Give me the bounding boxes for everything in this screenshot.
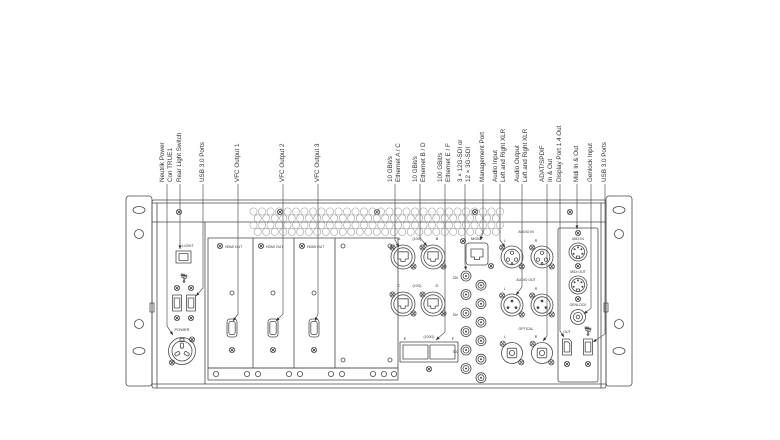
usb-port: [173, 295, 182, 311]
callout-arrow: [516, 291, 519, 295]
callout-leader: [500, 184, 505, 247]
usb-port: [187, 295, 196, 311]
vent-hole: [356, 215, 363, 222]
vent-hole: [420, 222, 427, 229]
vent-hole: [292, 208, 299, 215]
displayport-connector: [563, 339, 572, 355]
vent-hole: [297, 228, 304, 235]
vent-hole: [373, 215, 380, 222]
vent-hole: [254, 228, 261, 235]
hdmi-connector: [227, 319, 237, 337]
sdi-bnc-connector: [461, 290, 471, 300]
vent-hole: [399, 228, 406, 235]
vent-hole: [407, 228, 414, 235]
rack-ear-right: [606, 196, 632, 386]
hdmi-connector: [268, 319, 278, 337]
panel-drawing: LIGHT POWER HDMI OUT HDMI OUT: [0, 0, 780, 440]
callout-arrow: [233, 317, 236, 321]
vent-hole: [394, 208, 401, 215]
vent-hole: [365, 228, 372, 235]
callout-leader: [584, 184, 591, 314]
vent-hole: [309, 208, 316, 215]
sdi-bnc-connector: [461, 308, 471, 318]
sdi-bnc-connector: [476, 299, 486, 309]
vent-hole: [284, 208, 291, 215]
vent-hole: [454, 208, 461, 215]
ethercon-d: [420, 292, 446, 316]
audio-section: [500, 245, 555, 365]
vent-hole: [424, 215, 431, 222]
hdmi-out-label: HDMI OUT: [266, 245, 284, 249]
vent-hole: [250, 222, 257, 229]
callout-label: Audio InputLeft and Right XLR: [492, 129, 508, 182]
eth-b-label: B: [436, 236, 439, 241]
vent-hole: [369, 208, 376, 215]
audio-out-left-xlr: [500, 293, 525, 317]
vent-hole: [382, 228, 389, 235]
eth-c-label: C: [398, 283, 401, 288]
callout-leader: [233, 184, 238, 321]
strip-hole: [381, 371, 386, 376]
powercon-connector: [169, 337, 196, 365]
eth-a-label: A: [398, 236, 401, 241]
vent-hole: [475, 228, 482, 235]
optical-left: [500, 341, 524, 365]
r-label: R: [535, 335, 538, 339]
vent-hole: [254, 215, 261, 222]
l-label: L: [504, 335, 506, 339]
sdi-bnc-connector: [461, 364, 471, 374]
vent-hole: [322, 228, 329, 235]
vent-hole: [365, 215, 372, 222]
callout-arrow: [170, 331, 173, 335]
vent-hole: [475, 215, 482, 222]
vent-hole: [467, 228, 474, 235]
strip-hole: [213, 371, 218, 376]
vent-hole: [352, 208, 359, 215]
vent-hole: [416, 228, 423, 235]
eth-f-label: F: [452, 336, 455, 341]
vfc-card-3: [299, 243, 319, 352]
vent-hole: [386, 208, 393, 215]
hdmi-out-label: HDMI OUT: [307, 245, 325, 249]
vent-hole: [462, 222, 469, 229]
vent-hole: [420, 208, 427, 215]
sdi-bnc-connector: [476, 373, 486, 383]
vent-hole: [258, 222, 265, 229]
vent-hole: [484, 215, 491, 222]
midi-in-label: MIDI IN: [572, 237, 584, 241]
audio-out-right-xlr: [530, 293, 555, 317]
vent-hole: [301, 222, 308, 229]
vent-hole: [492, 215, 499, 222]
callout-leader: [167, 184, 173, 335]
sdi-bnc-connector: [476, 336, 486, 346]
optical-label: OPTICAL: [519, 327, 534, 331]
callout-label: Audio OutputLeft and Right XLR: [514, 129, 530, 182]
sdi-bnc-connector: [461, 327, 471, 337]
vent-hole: [309, 222, 316, 229]
vent-hole: [331, 228, 338, 235]
mgmt-port: [466, 243, 488, 265]
callout-label: Neutrik PowerCon TRUE1: [159, 142, 175, 182]
callout-label: ADAT/SPDIFIn & Out: [539, 145, 555, 182]
vent-hole: [271, 215, 278, 222]
callout-label: VFC Output 1: [234, 144, 242, 183]
vent-hole: [377, 208, 384, 215]
callout-arrow: [179, 245, 182, 249]
callout-leader: [560, 184, 564, 337]
vent-hole: [437, 208, 444, 215]
vent-hole: [305, 215, 312, 222]
vent-hole: [258, 208, 265, 215]
sdi-bnc-connector: [476, 280, 486, 290]
ethercon-c: [390, 292, 416, 316]
callout-label: 10 GBit/sEthernet A / C: [387, 143, 403, 182]
rear-light-switch: [176, 251, 191, 263]
vent-hole: [411, 222, 418, 229]
eth-100g-label: (100G): [424, 335, 435, 339]
vent-hole: [377, 222, 384, 229]
sdi-bnc-connector: [461, 271, 471, 281]
vent-hole: [339, 215, 346, 222]
callout-arrow: [593, 339, 597, 342]
callout-label: VFC Output 3: [314, 144, 322, 183]
vent-hole: [458, 215, 465, 222]
rack-chassis: [126, 196, 632, 388]
vent-hole: [416, 215, 423, 222]
vent-hole: [399, 215, 406, 222]
strip-hole: [370, 371, 375, 376]
vent-hole: [352, 222, 359, 229]
vent-hole: [450, 228, 457, 235]
vent-hole: [348, 215, 355, 222]
callout-arrow: [576, 225, 579, 229]
vent-hole: [437, 222, 444, 229]
vent-hole: [335, 222, 342, 229]
vent-hole: [403, 222, 410, 229]
vent-hole: [445, 208, 452, 215]
audio-in-label: AUDIO IN: [518, 230, 534, 234]
vent-hole: [433, 215, 440, 222]
vent-hole: [343, 208, 350, 215]
vfc-card-2: [258, 243, 278, 352]
vent-hole: [356, 228, 363, 235]
rack-ear-left: [126, 196, 152, 386]
l-label: L: [504, 287, 506, 291]
vent-hole: [445, 222, 452, 229]
vent-hole: [292, 222, 299, 229]
vent-hole: [407, 215, 414, 222]
callout-leader: [543, 184, 547, 341]
vent-hole: [454, 222, 461, 229]
callout-label: Management Port: [479, 132, 487, 182]
audio-in-left-xlr: [500, 245, 525, 269]
vent-hole: [288, 228, 295, 235]
vent-hole: [471, 222, 478, 229]
callout-label: USB 3.0 Ports: [601, 142, 609, 182]
vent-hole: [326, 208, 333, 215]
vent-hole: [288, 215, 295, 222]
vent-hole: [326, 222, 333, 229]
usb-icon: [585, 327, 591, 335]
vent-hole: [390, 228, 397, 235]
r-label: R: [535, 239, 538, 243]
vent-hole: [373, 228, 380, 235]
midi-in-connector: [569, 243, 587, 261]
callout-leader: [196, 184, 203, 296]
vent-hole: [314, 228, 321, 235]
vent-hole: [318, 208, 325, 215]
vent-hole: [343, 222, 350, 229]
hdmi-out-label: HDMI OUT: [225, 245, 243, 249]
vent-hole: [403, 208, 410, 215]
callout-label: 10 GBit/sEthernet B / D: [412, 142, 428, 182]
vent-hole: [267, 222, 274, 229]
sdi-bnc-grid: [461, 271, 486, 383]
vent-hole: [360, 208, 367, 215]
vent-hole: [428, 208, 435, 215]
vent-hole: [488, 208, 495, 215]
vent-hole: [428, 222, 435, 229]
callout-label: Genlock Input: [587, 143, 595, 182]
vent-hole: [390, 215, 397, 222]
callout-leader: [593, 184, 605, 342]
vent-hole: [360, 222, 367, 229]
callout-label: USB 3.0 Ports: [199, 142, 207, 182]
audio-out-label: AUDIO OUT: [516, 278, 536, 282]
sdi-label: SDI: [453, 313, 458, 317]
vent-hole: [263, 228, 270, 235]
vent-hole: [301, 208, 308, 215]
callout-label: 3 × 12G-SDI or12 × 3G-SDI: [457, 139, 473, 182]
strip-hole: [255, 371, 260, 376]
vent-hole: [271, 228, 278, 235]
vfc-card-1: [217, 243, 237, 352]
vent-hole: [458, 228, 465, 235]
callout-leader-lines: [167, 184, 605, 342]
strip-hole: [339, 371, 344, 376]
ethercon-b: [420, 245, 446, 269]
vent-hole: [467, 215, 474, 222]
vent-hole: [305, 228, 312, 235]
strip-hole: [286, 371, 291, 376]
hdmi-connector: [309, 319, 319, 337]
vent-hole: [424, 228, 431, 235]
strip-hole: [297, 371, 302, 376]
vent-hole: [394, 222, 401, 229]
callout-label: VFC Output 2: [279, 144, 287, 183]
vent-hole: [250, 208, 257, 215]
dp-out-label: OUT: [563, 330, 571, 334]
sdi-bnc-connector: [476, 354, 486, 364]
audio-in-right-xlr: [530, 245, 555, 269]
callout-label: Midi In & Out: [573, 146, 581, 182]
r-label: R: [535, 287, 538, 291]
vent-hole: [267, 208, 274, 215]
sdi-label: SDI: [453, 276, 458, 280]
vent-hole: [263, 215, 270, 222]
vent-hole: [492, 228, 499, 235]
vent-hole: [348, 228, 355, 235]
vent-hole: [322, 215, 329, 222]
strip-hole: [244, 371, 249, 376]
vent-hole: [314, 215, 321, 222]
vent-hole: [335, 208, 342, 215]
card-cage: [208, 238, 398, 380]
strip-hole: [328, 371, 333, 376]
midi-out-connector: [569, 276, 587, 294]
callout-label: Rear Light Switch: [176, 133, 184, 182]
eth-d-label: D: [436, 283, 439, 288]
vent-hole: [433, 228, 440, 235]
sdi-bnc-connector: [461, 345, 471, 355]
eth-e-label: E: [404, 336, 407, 341]
optical-right: [530, 341, 554, 365]
genlock-bnc: [571, 310, 586, 325]
callout-arrow: [464, 266, 467, 270]
l-label: L: [504, 239, 506, 243]
sdi-label: SDI: [453, 350, 458, 354]
vent-hole: [297, 215, 304, 222]
vent-hole: [284, 222, 291, 229]
vent-hole: [369, 222, 376, 229]
vent-hole: [331, 215, 338, 222]
power-label: POWER: [174, 327, 189, 332]
vent-hole: [484, 228, 491, 235]
vent-hole: [382, 215, 389, 222]
vent-hole: [318, 222, 325, 229]
vent-hole: [450, 215, 457, 222]
vent-hole: [488, 222, 495, 229]
vent-hole: [411, 208, 418, 215]
genlock-label: GENLOCK: [569, 303, 587, 307]
usb-icon: [181, 274, 187, 282]
light-label: LIGHT: [182, 243, 194, 248]
vent-hole: [275, 222, 282, 229]
midi-out-label: MIDI OUT: [570, 270, 587, 274]
sdi-bnc-connector: [476, 317, 486, 327]
usb-port: [584, 339, 593, 355]
vent-hole: [339, 228, 346, 235]
callout-label: 100 GBit/sEthernet E / F: [437, 143, 453, 182]
callout-leader: [276, 184, 283, 321]
callout-label: Display Port 1.4 Out: [556, 126, 564, 182]
ethercon-a: [390, 245, 416, 269]
callout-leader: [315, 184, 318, 321]
vent-hole: [386, 222, 393, 229]
vent-hole: [462, 208, 469, 215]
eth-10g-label: (10G): [413, 284, 422, 288]
strip-hole: [391, 371, 396, 376]
rear-panel-diagram: LIGHT POWER HDMI OUT HDMI OUT: [0, 0, 780, 440]
